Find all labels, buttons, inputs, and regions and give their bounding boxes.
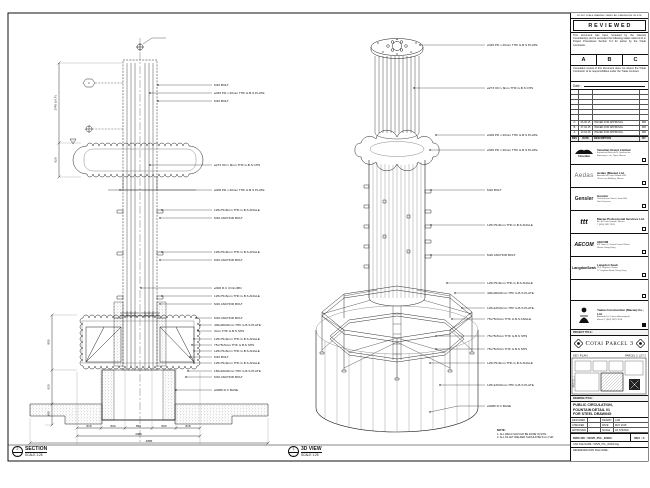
iso-tag-ref: - xyxy=(293,453,294,458)
review-paragraph-2: Consultant review of this document does … xyxy=(571,66,648,82)
status-row: A B C xyxy=(571,55,648,66)
callout: ø300 R.C COLUMN xyxy=(214,286,242,290)
callout: M16 ANCHOR BOLT xyxy=(214,216,243,220)
consultant-address: China Law Building, Macau xyxy=(597,178,648,181)
callout: 125x75x6mm THK G.B.S ANGLE xyxy=(487,361,533,365)
consultant-checkbox xyxy=(642,158,646,162)
dim-overall: 4886 xyxy=(146,439,153,443)
ornament-icon xyxy=(574,339,583,348)
consultant-address: T (853) 2837 2623 xyxy=(597,224,648,227)
callout: 125x75x6mm THK G.B.S ANGLE xyxy=(214,250,260,254)
drawing-canvas: 2 1 1740 (V.I.F) 620 855 620 380 818 800… xyxy=(0,0,650,488)
consultant-venetian: Venetian Venetian Orient Limited Estrada… xyxy=(571,142,648,165)
dwg-no-value: 51525_PCL_00303 xyxy=(587,436,611,440)
status-a: A xyxy=(571,55,597,65)
dim-label: 818 xyxy=(185,424,190,428)
consultant-checkbox xyxy=(642,181,646,185)
iso-scale: SCALE 1:25 xyxy=(301,453,322,457)
date-row: Date : xyxy=(571,82,648,90)
date-line xyxy=(584,83,645,87)
project-name: Cotai Parcel 3 xyxy=(586,340,634,347)
section-view-label: 2 - SECTION SCALE 1:25 xyxy=(12,446,47,457)
callout: ø273 OD x 8mm THK G.B.S CHS xyxy=(487,86,533,90)
iso-view-label: 3 - 3D VIEW SCALE 1:25 xyxy=(288,446,322,457)
section-flag-icon xyxy=(70,79,123,144)
callout: 150x100x8mm THK G.B.S PLATE xyxy=(214,369,261,373)
dim-label: 380 xyxy=(47,411,51,416)
callout: 125x125x6mm THK G.B.S PLATE xyxy=(487,383,534,387)
dim-label: 818 xyxy=(86,424,91,428)
consultant-gensler: Gensler Gensler Two Harrison Street, Sui… xyxy=(571,188,648,211)
consultant-address: Shatin, Hong Kong xyxy=(597,247,648,250)
callout: M16 BOLT xyxy=(214,355,229,359)
meta-label: SCALE xyxy=(601,428,614,433)
reviewed-stamp: R E V I E W E D xyxy=(571,19,648,33)
venetian-logo: Venetian xyxy=(571,147,597,158)
callout: 400x200x8mm THK G.B.S PLATE xyxy=(214,323,261,327)
consultant-checkbox xyxy=(642,294,646,298)
dwg-no-label: DWG NO : xyxy=(573,436,587,440)
callout: 125x75x6mm THK G.B.S ANGLE xyxy=(214,337,260,341)
callout: ø406 PD x 20mm THK G.B.S PLATE xyxy=(214,188,265,192)
section-callout-texts: M16 BOLT ø345 PD x 20mm THK G.B.S PLATE … xyxy=(214,83,265,392)
callout: ø4086 R.C BASE xyxy=(487,404,511,408)
callout: M16 ANCHOR BOLT xyxy=(214,316,243,320)
drawing-title: PUBLIC CIRCULATION, FOUNTAIN DETAIL 01 F… xyxy=(571,402,648,418)
cad-file-label: CAD FILE NAME : xyxy=(573,443,593,446)
callout: 75x75x5mm THK G.B.S SHS xyxy=(487,334,527,338)
callout: M16 ANCHOR BOLT xyxy=(214,302,243,306)
ornament-icon xyxy=(636,339,645,348)
note-item: 2. ALL FILLET WELDED SHOULD BE 6mm THK. xyxy=(497,436,569,440)
callout: M16 BOLT xyxy=(487,188,502,192)
key-plan-parcel-label: PARCEL 3, LOT 2 xyxy=(625,354,646,358)
consultant-langdonseah: LangdonSeah Langdon Seah 21/F Leighton C… xyxy=(571,257,648,280)
revision-table: C 06.05.15 ISSUED FOR APPROVAL WD B 27.0… xyxy=(571,90,648,142)
collar-cloud xyxy=(73,143,203,190)
section-tag-ref: - xyxy=(17,453,18,458)
meta-value: AS SHOWN xyxy=(614,428,648,433)
aedas-logo: Aedas xyxy=(571,173,597,179)
contractor-address: Macau T (853) 2875 3218 xyxy=(597,319,648,322)
meta-table: DESIGNED - DRAWN LAM CHECKED - DATE MAY … xyxy=(571,418,648,434)
drawing-sheet: 2 1 1740 (V.I.F) 620 855 620 380 818 800… xyxy=(0,0,650,488)
consultant-address: 77 Leighton Road, Hong Kong xyxy=(597,270,648,273)
rev-label: REV : xyxy=(634,436,641,440)
mps-logo: ttt xyxy=(571,218,597,226)
callout: 125x125x6mm THK G.B.S PLATE xyxy=(487,306,534,310)
section-tag-icon: 2 - xyxy=(12,446,23,457)
callout: 125x75x6mm THK G.B.S ANGLE xyxy=(487,281,533,285)
langdonseah-logo: LangdonSeah xyxy=(571,266,597,270)
iso-callout-leaders xyxy=(413,44,485,412)
status-b: B xyxy=(597,55,623,65)
callout: ø345 PD x 20mm THK G.B.S PLATE xyxy=(214,91,265,95)
reference-row: REFERENCE DWG FILE NAME : xyxy=(571,448,648,461)
dim-label: 620 xyxy=(54,157,58,162)
iso-collar xyxy=(355,130,439,171)
dim-label: 850 xyxy=(136,424,141,428)
revision-table-header: REV DATE DESCRIPTION BY xyxy=(571,136,648,141)
iso-base-drum xyxy=(316,306,478,432)
key-plan: KEY PLAN PARCEL 3, LOT 2 PARCEL 1 xyxy=(571,352,648,396)
title-block: DO NOT SCALE DRAWING. VERIFY ALL DIMENSI… xyxy=(570,13,648,461)
venetian-wordmark: Venetian xyxy=(578,155,590,158)
consultant-empty xyxy=(571,280,648,301)
consultant-aecom: AECOM AECOM 8/F Tower 2, Grand Central P… xyxy=(571,234,648,257)
consultant-checkbox xyxy=(642,204,646,208)
callout: M16 BOLT xyxy=(214,99,229,103)
dim-label: 800 xyxy=(161,424,166,428)
dim-total: 4086 xyxy=(135,432,142,436)
contractor-logo xyxy=(571,307,597,324)
iso-view: ø345 PD x 20mm THK G.B.S PLATE ø273 OD x… xyxy=(316,39,538,433)
iso-tag-icon: 3 - xyxy=(288,446,299,457)
rev-value: C xyxy=(643,436,645,440)
meta-value: - xyxy=(588,428,601,433)
section-title: SECTION xyxy=(25,446,47,453)
callout: M16 ANCHOR BOLT xyxy=(487,253,516,257)
dim-label: 800 xyxy=(110,424,115,428)
section-view: 2 1 1740 (V.I.F) 620 855 620 380 818 800… xyxy=(29,38,270,445)
callout: ø345 PD x 20mm THK G.B.S PLATE xyxy=(487,43,538,47)
consultant-address: San Francisco xyxy=(597,201,648,204)
callout: M16 ANCHOR BOLT xyxy=(214,258,243,262)
callout: 75x75x6mm THK G.B.S ANGLE xyxy=(487,317,531,321)
contractor-emblem-icon xyxy=(578,307,590,324)
survey-point-icon xyxy=(136,38,166,51)
key-plan-side-label: PARCEL 1 xyxy=(573,376,576,388)
dim-label: 855 xyxy=(47,339,51,344)
callout: ø406 PD x 20mm THK G.B.S PLATE xyxy=(487,133,538,137)
dwg-no-row: DWG NO : 51525_PCL_00303 REV : C xyxy=(571,434,648,442)
consultant-aedas: Aedas Aedas (Macau) Ltd. Avenida da Prai… xyxy=(571,165,648,188)
review-paragraph-1: This document has been reviewed by the r… xyxy=(571,33,648,55)
reviewed-label: R E V I E W E D xyxy=(573,20,646,31)
consultant-address: Esperança, s/n, Taipa, Macau xyxy=(597,155,648,158)
iso-callout-texts: ø345 PD x 20mm THK G.B.S PLATE ø273 OD x… xyxy=(487,43,538,408)
aecom-logo: AECOM xyxy=(571,242,597,248)
flag-number: 2 xyxy=(88,81,90,85)
callout: 400x200x8mm THK G.B.S PLATE xyxy=(487,291,534,295)
gensler-logo: Gensler xyxy=(571,196,597,202)
dim-label: 620 xyxy=(47,384,51,389)
consultant-checkbox xyxy=(642,227,646,231)
notes-block: NOTE: 1. ALL WELD SHOULD BE DONE IN SITE… xyxy=(497,429,569,440)
contractor-checkbox xyxy=(642,323,646,327)
iso-column xyxy=(364,160,431,306)
cad-file-value: 51525_PCL_00303.dwg xyxy=(593,443,619,446)
callout: 125x75x6mm THK G.B.S ANGLE xyxy=(214,349,260,353)
dim-label: 1740 (V.I.F) xyxy=(54,95,58,111)
callout: ø345 PD x 20mm THK G.B.S PLATE xyxy=(487,148,538,152)
date-label: Date : xyxy=(573,84,582,88)
section-scale: SCALE 1:25 xyxy=(25,453,47,457)
callout: 125x75x6mm THK G.B.S ANGLE xyxy=(214,208,260,212)
iso-pipes xyxy=(375,56,419,139)
key-plan-drawing: KEY PLAN PARCEL 3, LOT 2 PARCEL 1 xyxy=(571,352,648,395)
callout: M16 ANCHOR BOLT xyxy=(214,375,243,379)
callout: 125x75x6mm THK G.B.S ANGLE xyxy=(214,361,260,365)
consultant-checkbox xyxy=(642,273,646,277)
callout: 3mm THK G.B.S SHS xyxy=(214,329,244,333)
drawing-title-line: FOR STEEL DRAWING xyxy=(573,412,646,417)
project-name-box: Cotai Parcel 3 xyxy=(571,336,648,352)
key-plan-label: KEY PLAN xyxy=(573,354,588,358)
meta-label: APPROVED xyxy=(571,428,588,433)
consultant-checkbox xyxy=(642,250,646,254)
callout: 75x75x5mm THK G.B.S SHS xyxy=(214,343,254,347)
iso-top-plate xyxy=(371,39,423,59)
status-c: C xyxy=(623,55,648,65)
consultant-mps: ttt Macau Professional Services Ltd. Av.… xyxy=(571,211,648,234)
callout: M16 BOLT xyxy=(214,83,229,87)
callout: 125x75x6mm THK G.B.S ANGLE xyxy=(214,294,260,298)
callout: 125x75x6mm THK G.B.S ANGLE xyxy=(487,223,533,227)
callout: ø273 OD x 8mm THK G.B.S CHS xyxy=(214,163,260,167)
callout: ø4086 R.C BASE xyxy=(214,388,238,392)
iso-title: 3D VIEW xyxy=(301,446,322,453)
contractor-box: Yadea Construction (Macau) Co., Ltd. Ala… xyxy=(571,301,648,330)
callout: 75x75x5mm THK G.B.S SHS xyxy=(487,347,527,351)
